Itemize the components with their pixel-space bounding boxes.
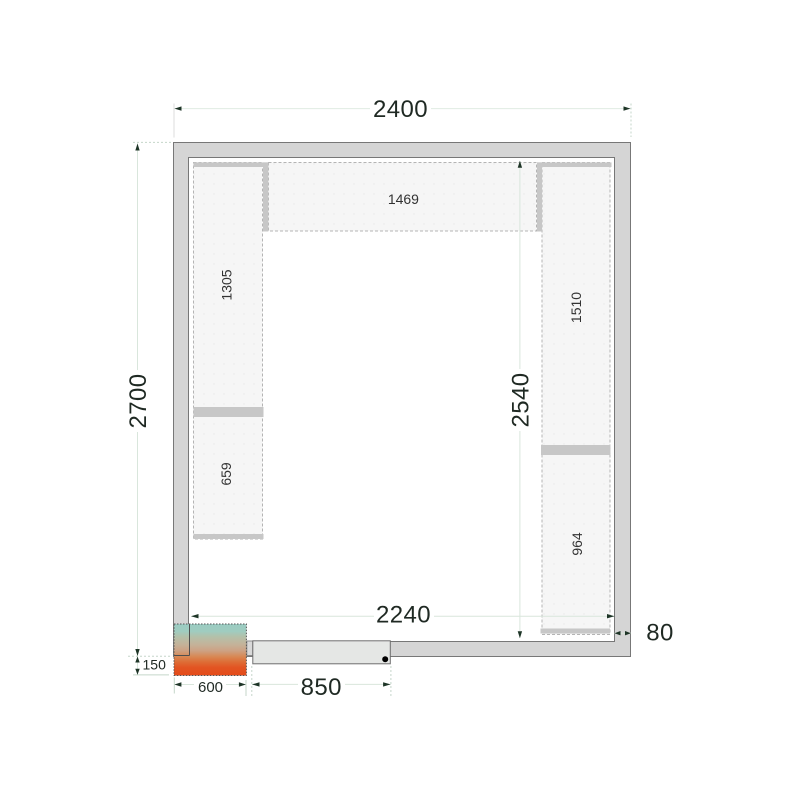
svg-text:150: 150: [143, 657, 167, 673]
svg-text:600: 600: [198, 679, 223, 696]
svg-text:850: 850: [301, 674, 342, 701]
svg-text:1305: 1305: [219, 269, 235, 300]
svg-text:1510: 1510: [568, 292, 584, 323]
svg-text:2400: 2400: [373, 96, 428, 123]
svg-text:964: 964: [569, 532, 585, 556]
svg-text:2700: 2700: [125, 374, 152, 429]
svg-text:2240: 2240: [376, 602, 431, 629]
svg-text:2540: 2540: [508, 373, 535, 428]
svg-text:80: 80: [646, 620, 674, 647]
svg-text:659: 659: [218, 462, 234, 486]
svg-text:1469: 1469: [388, 191, 419, 207]
